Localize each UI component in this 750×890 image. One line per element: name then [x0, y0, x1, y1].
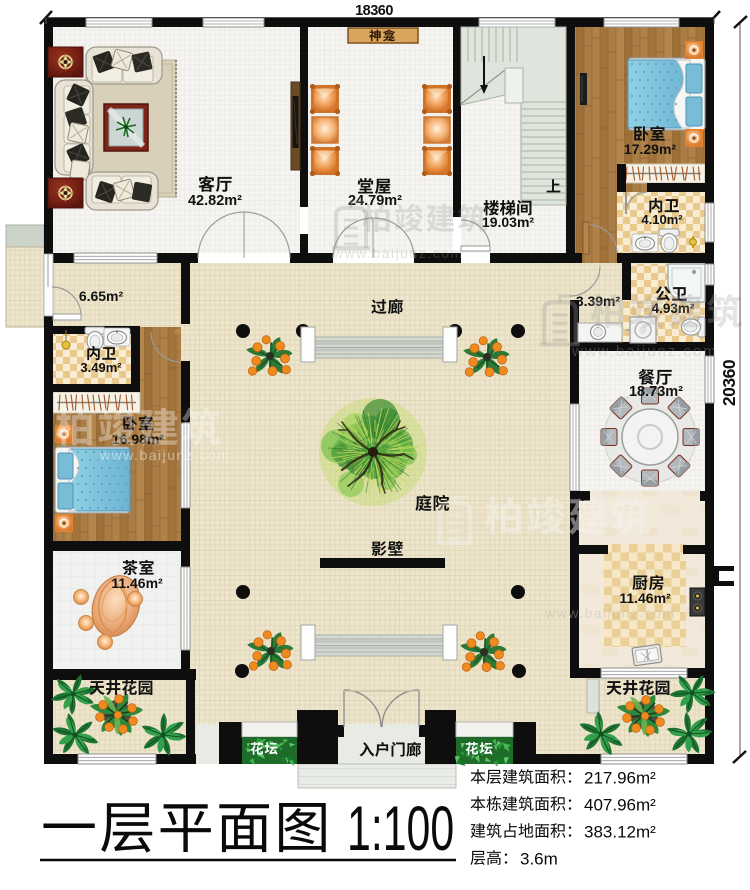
svg-text:11.46m²: 11.46m²	[619, 590, 671, 606]
svg-text:217.96m²: 217.96m²	[584, 769, 656, 788]
svg-text:407.96m²: 407.96m²	[584, 796, 656, 815]
svg-text:18.73m²: 18.73m²	[629, 384, 683, 400]
svg-text:www.baijunz.com: www.baijunz.com	[332, 245, 464, 261]
svg-text:www.baijunz.com: www.baijunz.com	[571, 343, 718, 360]
svg-text:4.10m²: 4.10m²	[641, 212, 683, 227]
svg-text:6.65m²: 6.65m²	[79, 288, 124, 304]
svg-text:18360: 18360	[355, 3, 393, 19]
svg-text:17.29m²: 17.29m²	[624, 141, 676, 157]
svg-text:19.03m²: 19.03m²	[482, 214, 534, 230]
svg-text:3.6m: 3.6m	[520, 850, 558, 869]
svg-text:11.46m²: 11.46m²	[111, 575, 163, 591]
svg-text:www.baijunz.com: www.baijunz.com	[99, 447, 231, 463]
svg-text:20360: 20360	[719, 359, 739, 406]
svg-text:www.baijunz.com: www.baijunz.com	[544, 605, 676, 621]
svg-text:383.12m²: 383.12m²	[584, 823, 656, 842]
svg-text:1:100: 1:100	[347, 794, 454, 864]
svg-text:3.49m²: 3.49m²	[80, 360, 122, 375]
svg-text:42.82m²: 42.82m²	[188, 193, 242, 209]
